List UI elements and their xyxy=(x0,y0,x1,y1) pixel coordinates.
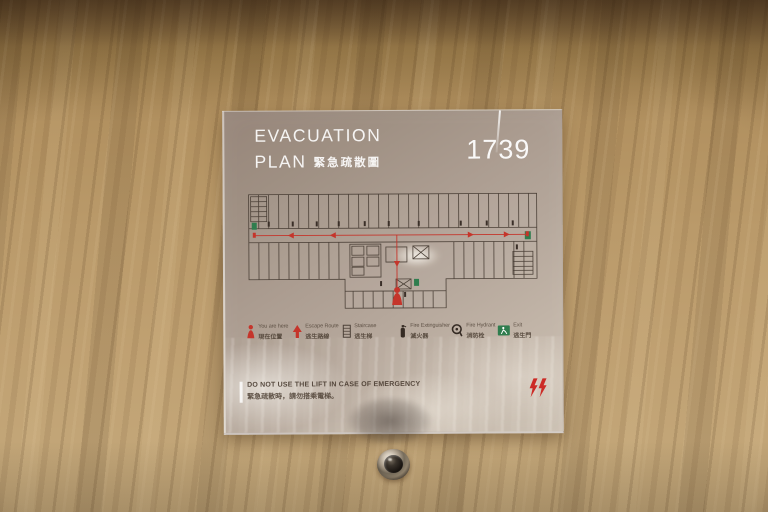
legend-item-escape-route: Escape Route 逃生路線 xyxy=(292,323,338,340)
door-peephole xyxy=(377,449,410,480)
legend-label-zh: 現在位置 xyxy=(258,331,288,340)
w-hotels-logo xyxy=(528,378,550,397)
evacuation-sign: EVACUATION PLAN緊急疏散圖 1739 xyxy=(222,109,564,435)
peephole-lens xyxy=(384,455,403,473)
legend-item-fire-extinguisher: Fire Extinguisher 滅火器 xyxy=(398,323,450,340)
you-are-here-icon xyxy=(246,325,255,339)
legend-label-zh: 逃生路線 xyxy=(305,331,338,340)
fire-hydrant-icon xyxy=(451,324,463,338)
sign-title: EVACUATION PLAN緊急疏散圖 xyxy=(254,125,381,173)
legend-label-zh: 逃生門 xyxy=(513,330,531,339)
exit-icon xyxy=(497,323,510,337)
peephole-glint xyxy=(388,458,392,461)
legend-label-en: Exit xyxy=(513,322,531,328)
legend-item-staircase: Staircase 逃生梯 xyxy=(342,323,376,340)
sign-title-line1: EVACUATION xyxy=(254,125,381,147)
legend-label-zh: 消防栓 xyxy=(466,330,495,339)
staircase-icon xyxy=(342,324,351,338)
legend-label-en: Escape Route xyxy=(305,323,338,329)
sign-title-line2: PLAN緊急疏散圖 xyxy=(254,151,381,173)
lift-warning: DO NOT USE THE LIFT IN CASE OF EMERGENCY… xyxy=(240,381,421,403)
legend: You are here 現在位置 Escape Route 逃生路線 xyxy=(246,322,541,356)
warning-text-en: DO NOT USE THE LIFT IN CASE OF EMERGENCY xyxy=(247,381,420,389)
legend-label-en: Fire Extinguisher xyxy=(410,323,450,329)
sign-title-plan: PLAN xyxy=(254,151,306,171)
sign-title-chinese: 緊急疏散圖 xyxy=(314,157,382,169)
room-number: 1739 xyxy=(466,134,530,165)
warning-divider-bar xyxy=(240,382,243,403)
legend-label-zh: 滅火器 xyxy=(410,330,450,339)
legend-item-you-are-here: You are here 現在位置 xyxy=(246,324,288,341)
fire-extinguisher-icon xyxy=(398,324,407,338)
legend-label-en: You are here xyxy=(258,324,288,330)
legend-label-zh: 逃生梯 xyxy=(354,331,376,340)
legend-item-fire-hydrant: Fire Hydrant 消防栓 xyxy=(451,322,495,339)
escape-route-icon xyxy=(292,324,302,338)
legend-item-exit: Exit 逃生門 xyxy=(497,322,531,339)
photo-scene: EVACUATION PLAN緊急疏散圖 1739 xyxy=(0,0,768,512)
floor-plan xyxy=(246,190,541,312)
legend-label-en: Staircase xyxy=(354,323,376,329)
warning-text-zh: 緊急疏散時，請勿搭乘電梯。 xyxy=(247,390,420,401)
legend-label-en: Fire Hydrant xyxy=(466,322,495,328)
